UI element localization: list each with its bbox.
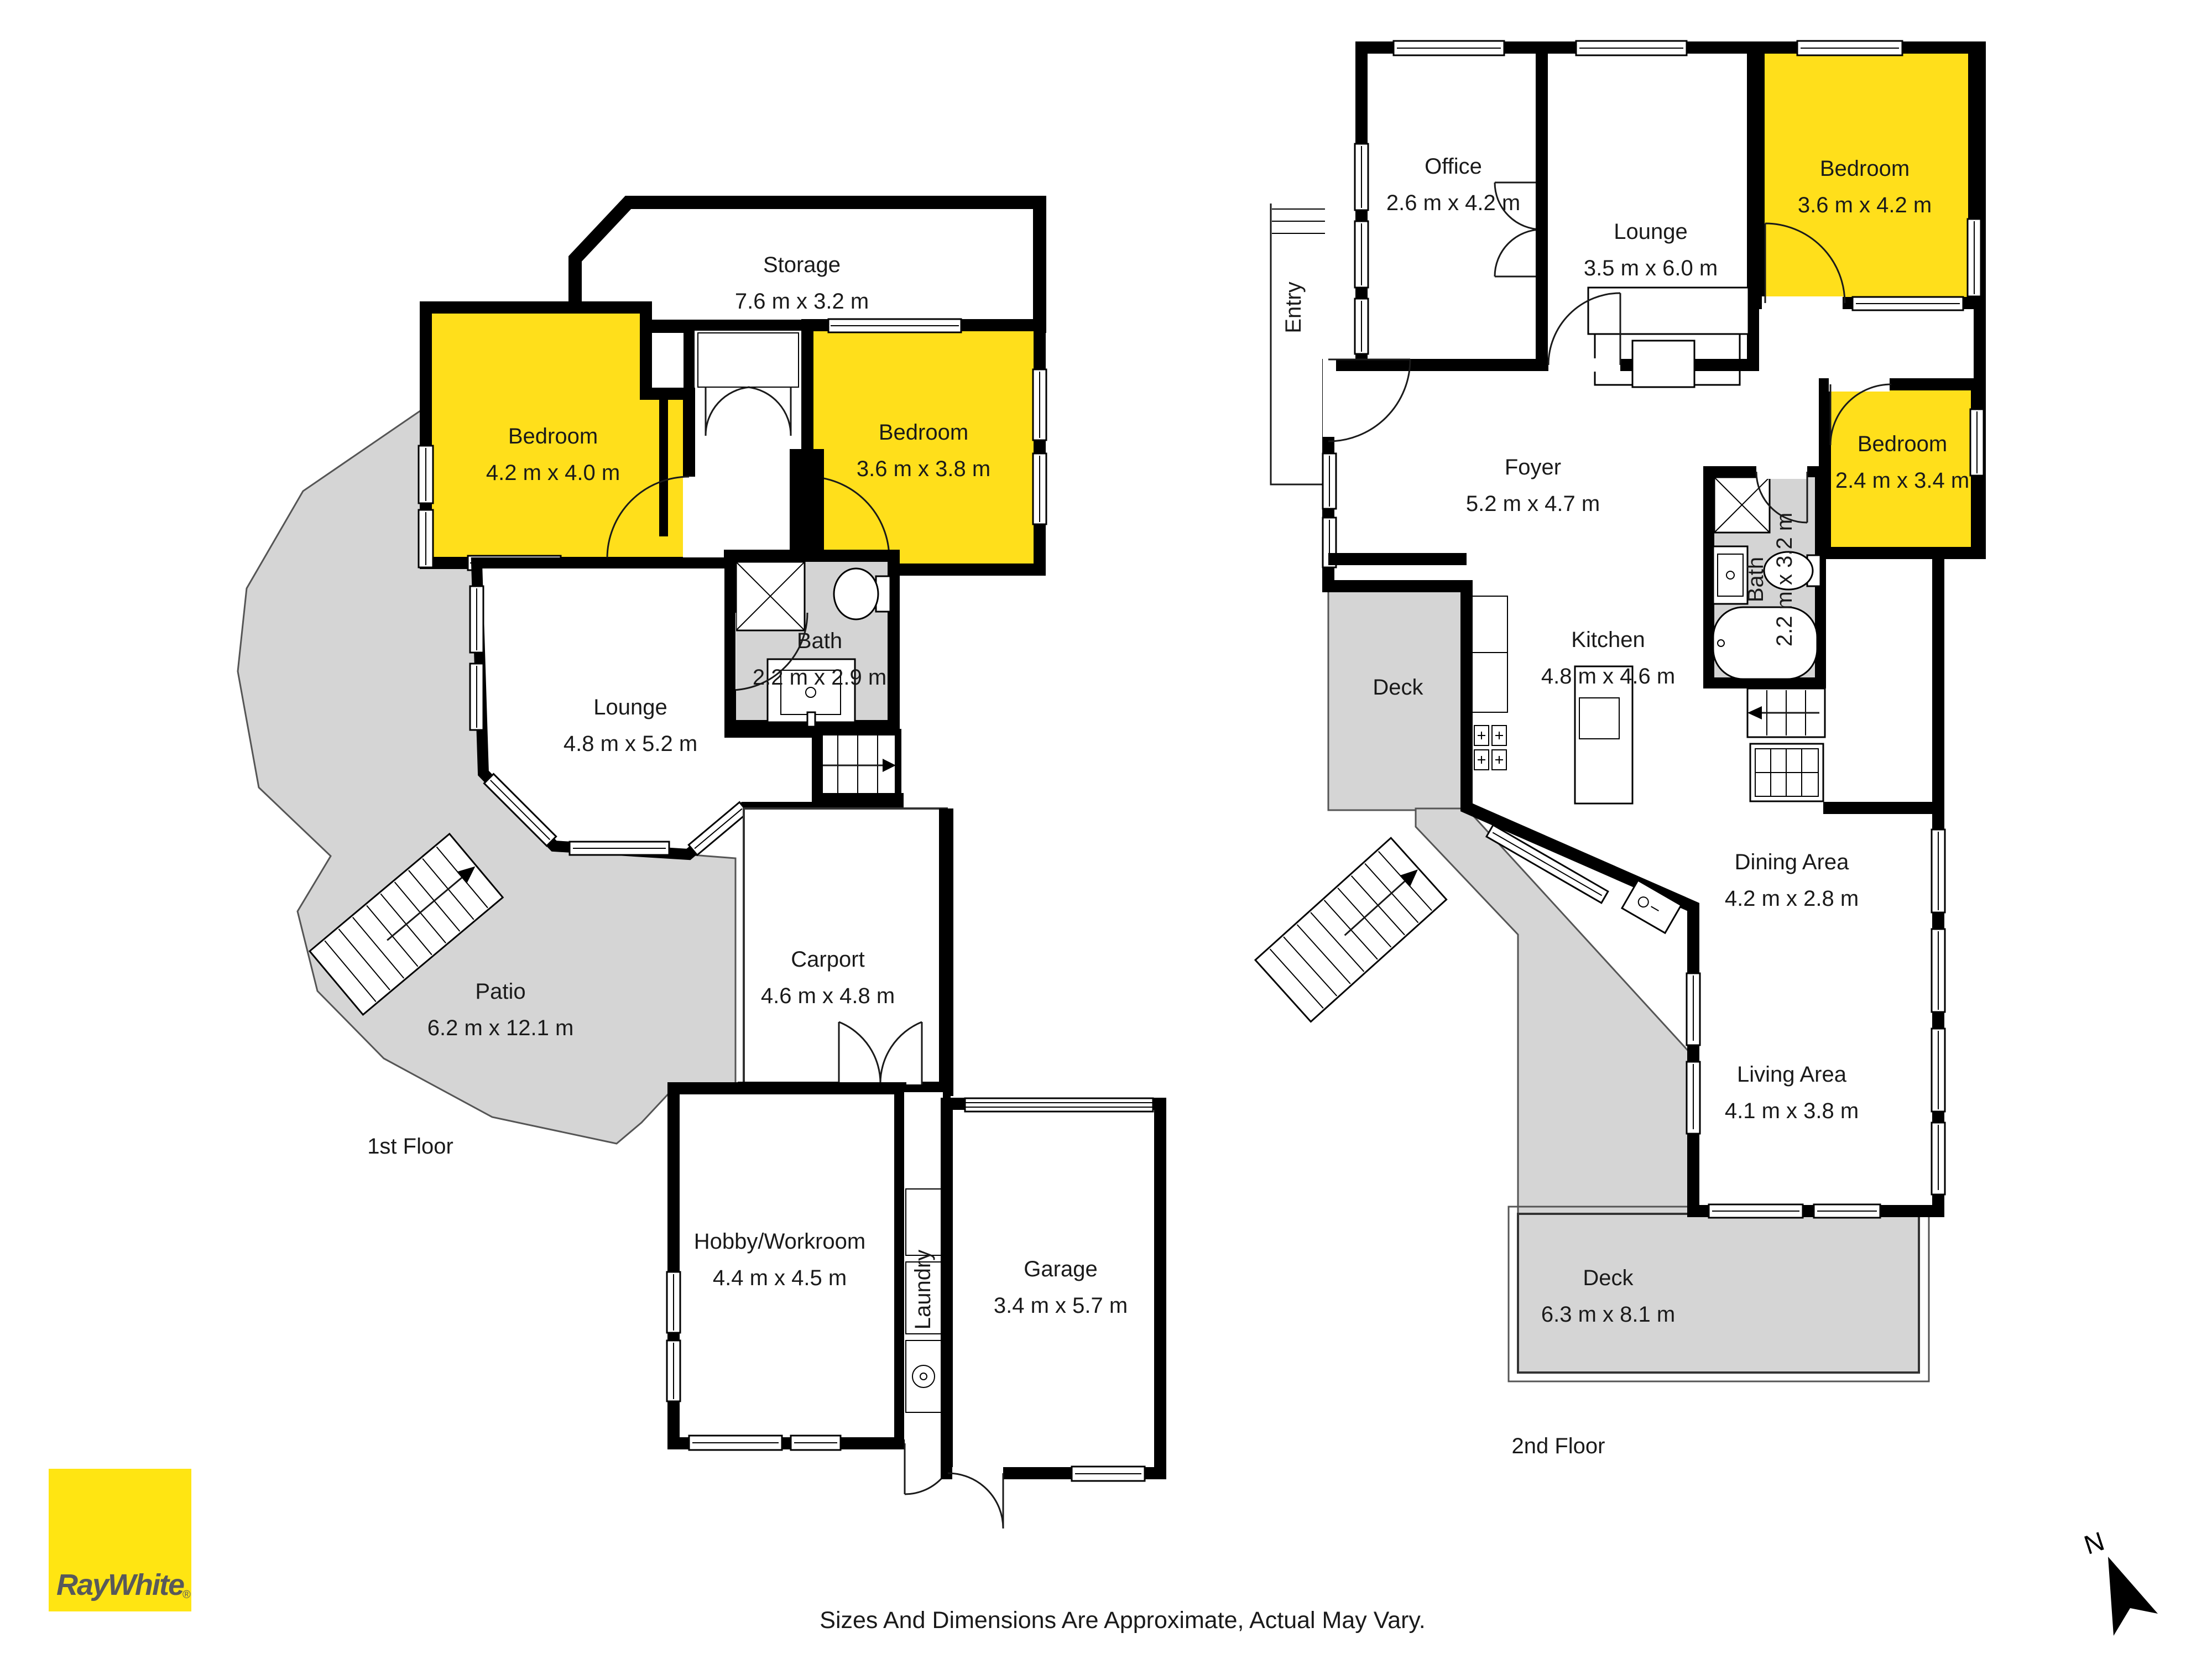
label-first-floor: 1st Floor <box>367 1134 453 1159</box>
label-laundry: Laundry <box>911 1250 935 1330</box>
label-lounge-1f-dims: 4.8 m x 5.2 m <box>564 732 697 756</box>
disclaimer-text: Sizes And Dimensions Are Approximate, Ac… <box>820 1607 1425 1634</box>
label-bedroom1-dims: 4.2 m x 4.0 m <box>486 461 620 485</box>
stairs-1f <box>817 732 898 799</box>
room-bedroom-1f-right <box>807 325 1040 570</box>
label-patio-dims: 6.2 m x 12.1 m <box>427 1016 574 1040</box>
floorplan-page: Storage 7.6 m x 3.2 m Bedroom 4.2 m x 4.… <box>0 0 2212 1659</box>
label-kitchen-dims: 4.8 m x 4.6 m <box>1541 664 1675 688</box>
label-foyer: Foyer <box>1505 455 1561 479</box>
label-foyer-dims: 5.2 m x 4.7 m <box>1466 492 1600 516</box>
label-office: Office <box>1425 154 1482 179</box>
second-floor-plan: Office 2.6 m x 4.2 m Lounge 3.5 m x 6.0 … <box>1255 41 1984 1458</box>
label-dining-dims: 4.2 m x 2.8 m <box>1725 886 1859 911</box>
label-carport-dims: 4.6 m x 4.8 m <box>761 984 895 1008</box>
label-bedroom-mid: Bedroom <box>1858 432 1947 456</box>
wall-deck-top <box>1328 553 1467 565</box>
label-bath-2f-dims: 2.2 m x 3.2 m <box>1772 513 1797 646</box>
bathtub <box>1713 607 1817 679</box>
label-entry: Entry <box>1281 281 1306 333</box>
label-kitchen: Kitchen <box>1571 628 1645 652</box>
wall-dining-top <box>1823 802 1938 814</box>
room-garage <box>947 1104 1160 1473</box>
wall-mass <box>790 449 824 557</box>
label-deck-upper: Deck <box>1373 675 1423 700</box>
label-garage: Garage <box>1024 1257 1097 1281</box>
label-bedroom2-dims: 3.6 m x 3.8 m <box>857 457 990 481</box>
label-lounge-2f: Lounge <box>1614 220 1687 244</box>
shower <box>736 562 805 630</box>
north-arrow: N <box>2081 1527 2158 1636</box>
floorplan-canvas: Storage 7.6 m x 3.2 m Bedroom 4.2 m x 4.… <box>0 0 2212 1659</box>
first-floor-plan: Storage 7.6 m x 3.2 m Bedroom 4.2 m x 4.… <box>238 202 1160 1528</box>
north-arrow-icon <box>2108 1557 2158 1636</box>
label-bath-1f: Bath <box>797 629 842 653</box>
deck-stairs <box>1255 838 1447 1021</box>
shower <box>1714 477 1770 533</box>
toilet <box>834 568 890 619</box>
label-deck-lower-dims: 6.3 m x 8.1 m <box>1541 1302 1675 1327</box>
north-label: N <box>2081 1527 2108 1561</box>
garage-roller-door <box>965 1098 1153 1112</box>
label-bath-2f: Bath <box>1744 557 1768 602</box>
label-lounge-1f: Lounge <box>593 695 667 719</box>
registered-mark: ® <box>182 1589 191 1601</box>
vanity <box>1713 546 1747 604</box>
wall-stub <box>659 394 668 536</box>
label-bedroom-top: Bedroom <box>1820 156 1910 181</box>
hallway <box>689 325 807 563</box>
label-bedroom-top-dims: 3.6 m x 4.2 m <box>1798 193 1932 217</box>
label-garage-dims: 3.4 m x 5.7 m <box>994 1293 1128 1318</box>
footer: RayWhite ® Sizes And Dimensions Are Appr… <box>49 1469 2158 1636</box>
stairs-2f <box>1747 688 1825 801</box>
label-bedroom2: Bedroom <box>879 420 968 445</box>
label-bedroom-mid-dims: 2.4 m x 3.4 m <box>1835 468 1969 493</box>
label-bath-1f-dims: 2.2 m x 2.9 m <box>753 665 886 690</box>
label-office-dims: 2.6 m x 4.2 m <box>1386 191 1520 215</box>
label-carport: Carport <box>791 947 864 972</box>
fireplace <box>1588 288 1749 387</box>
label-storage-dims: 7.6 m x 3.2 m <box>735 289 869 314</box>
label-living: Living Area <box>1737 1062 1847 1087</box>
label-storage: Storage <box>763 253 841 277</box>
label-living-dims: 4.1 m x 3.8 m <box>1725 1099 1859 1123</box>
label-patio: Patio <box>475 979 525 1004</box>
label-hobby-dims: 4.4 m x 4.5 m <box>713 1266 847 1290</box>
entry-porch <box>1271 204 1328 484</box>
label-deck-lower: Deck <box>1583 1266 1634 1290</box>
label-bedroom1: Bedroom <box>508 424 598 448</box>
label-hobby: Hobby/Workroom <box>694 1229 865 1254</box>
label-second-floor: 2nd Floor <box>1512 1434 1605 1458</box>
label-lounge-2f-dims: 3.5 m x 6.0 m <box>1584 256 1718 280</box>
raywhite-logo-text: RayWhite <box>56 1568 184 1601</box>
deck-lower <box>1518 1214 1919 1373</box>
garage-door <box>948 1473 1003 1528</box>
label-dining: Dining Area <box>1735 850 1850 874</box>
